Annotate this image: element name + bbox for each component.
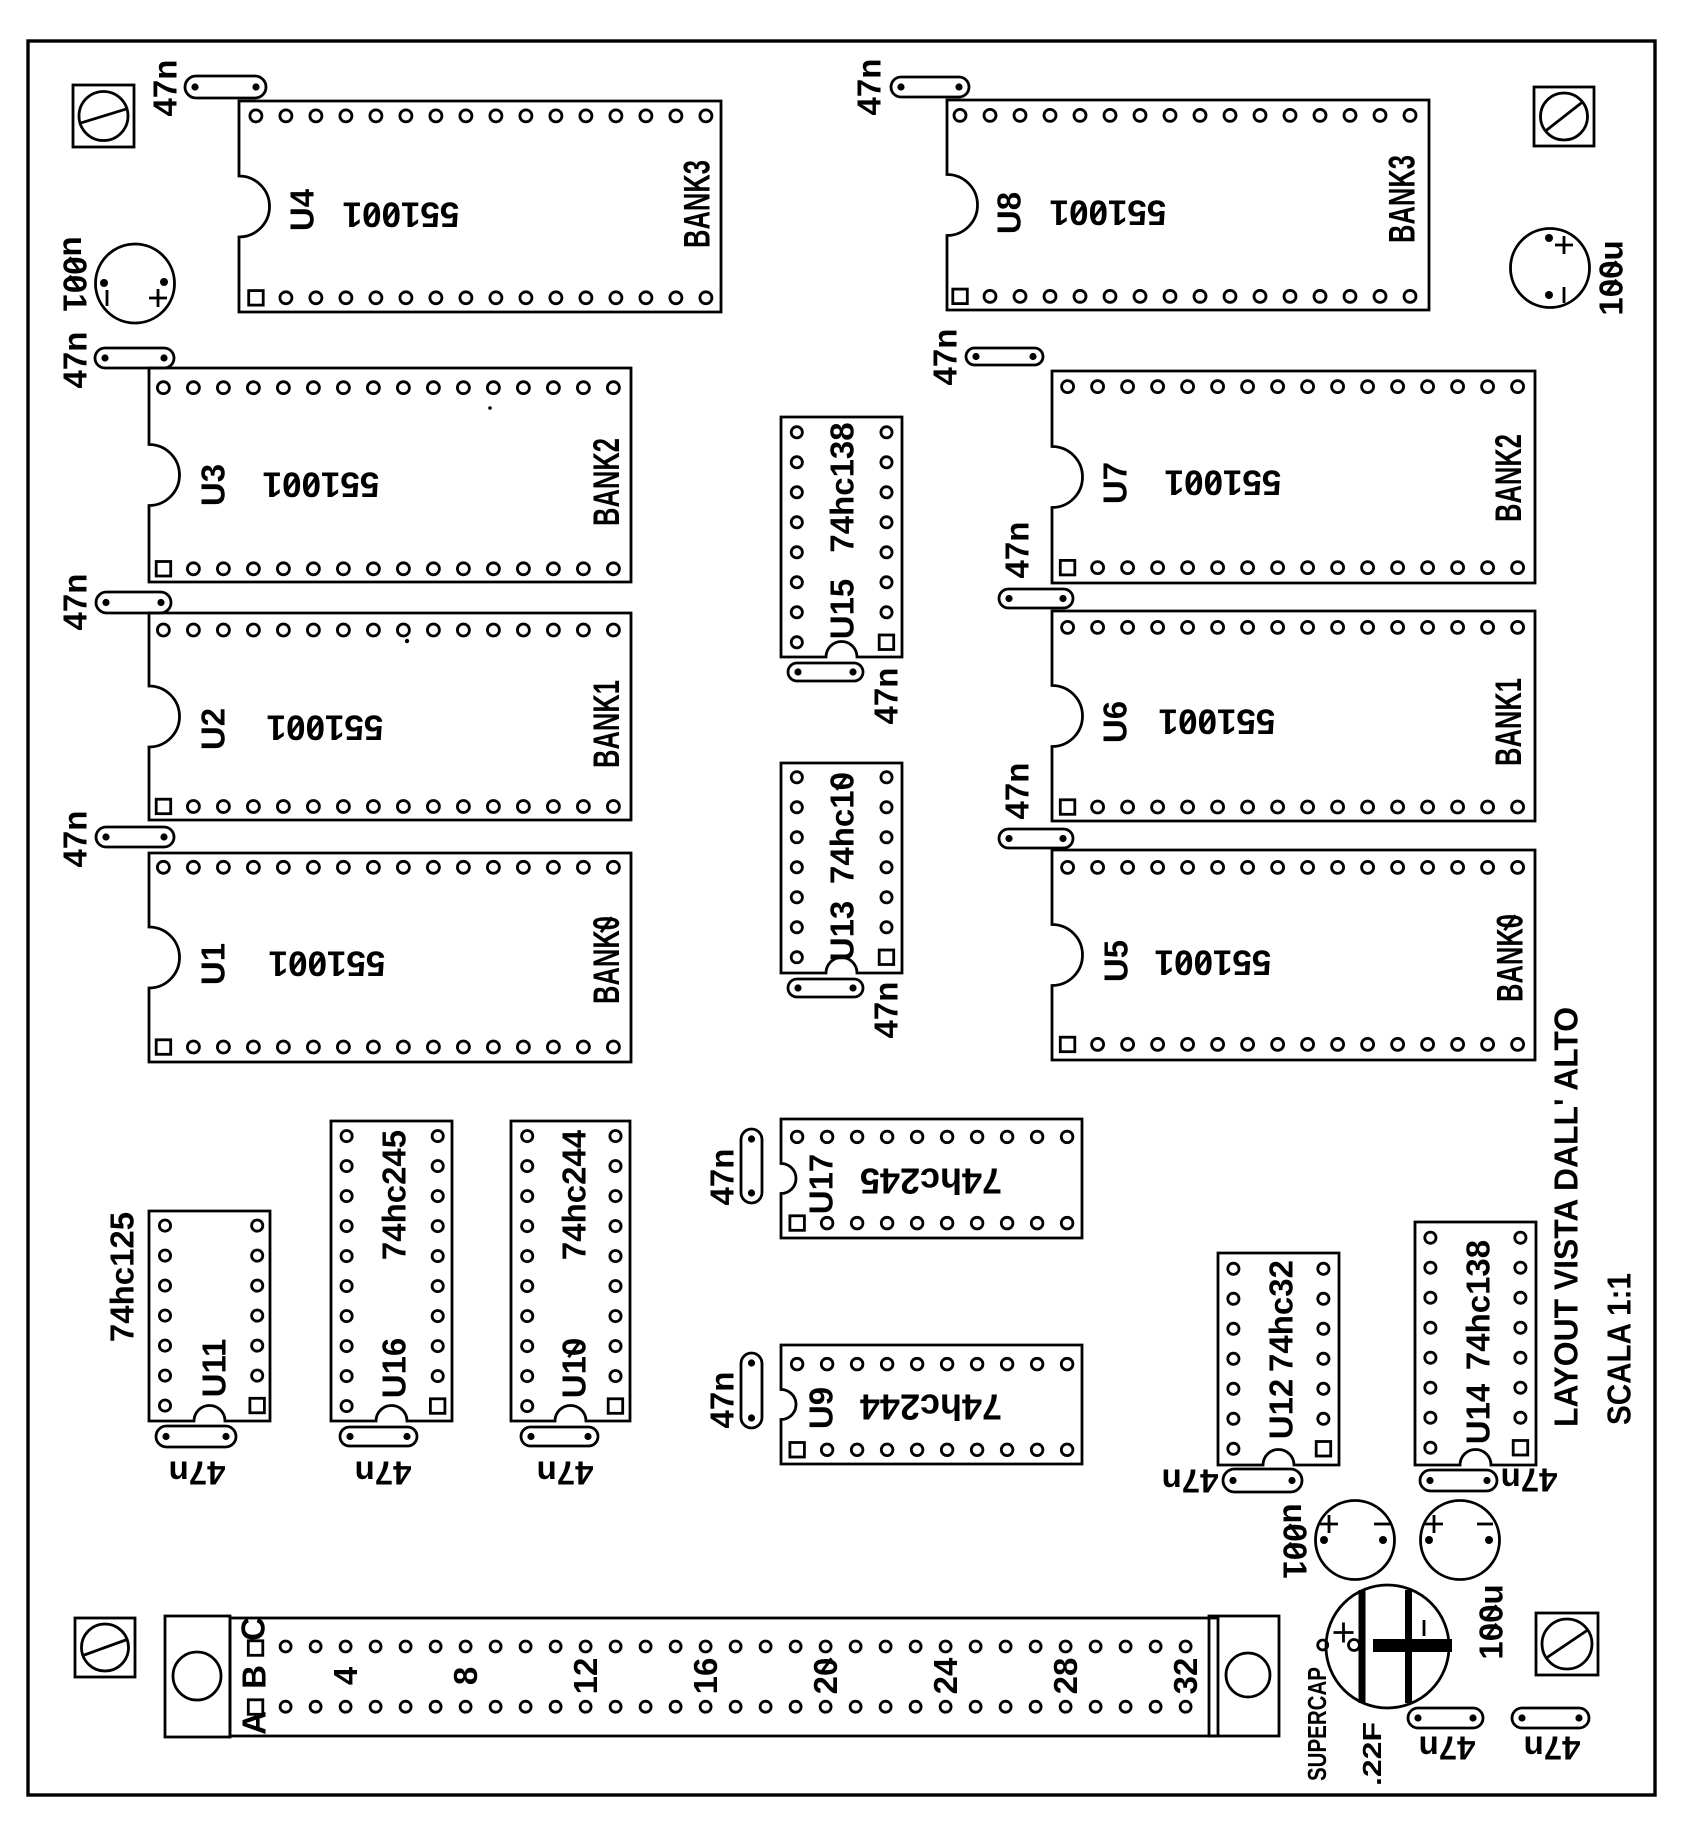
svg-text:551001: 551001 (1159, 702, 1276, 741)
svg-text:74hc245: 74hc245 (860, 1161, 1002, 1202)
svg-text:74hc125: 74hc125 (104, 1212, 141, 1342)
svg-text:47n: 47n (999, 522, 1036, 579)
svg-text:100u: 100u (1593, 240, 1630, 315)
svg-text:BANK1: BANK1 (586, 680, 627, 768)
svg-text:551001: 551001 (1155, 943, 1272, 982)
svg-text:U7: U7 (1097, 462, 1134, 504)
svg-text:8: 8 (447, 1667, 484, 1685)
svg-text:47n: 47n (537, 1455, 594, 1492)
svg-text:U10: U10 (556, 1338, 593, 1399)
svg-text:U14: U14 (1460, 1383, 1497, 1444)
svg-text:551001: 551001 (269, 944, 386, 983)
svg-text:47n: 47n (57, 811, 94, 868)
svg-text:SUPERCAP: SUPERCAP (1302, 1667, 1332, 1781)
svg-text:U13: U13 (824, 901, 861, 962)
svg-text:u001: u001 (1277, 1503, 1314, 1578)
svg-text:BANK2: BANK2 (586, 438, 627, 526)
svg-text:47n: 47n (57, 332, 94, 389)
svg-text:47n: 47n (999, 763, 1036, 820)
svg-text:47n: 47n (704, 1149, 741, 1206)
svg-text:551001: 551001 (1050, 193, 1167, 232)
svg-text:74hc138: 74hc138 (824, 422, 861, 552)
svg-text:U12: U12 (1263, 1379, 1300, 1440)
svg-text:U2: U2 (195, 708, 232, 750)
svg-text:47n: 47n (1501, 1462, 1558, 1499)
svg-text:BANK0: BANK0 (586, 916, 627, 1004)
svg-text:47n: 47n (1524, 1730, 1581, 1767)
svg-text:24: 24 (927, 1657, 964, 1694)
svg-text:U3: U3 (195, 464, 232, 506)
svg-text:U9: U9 (803, 1387, 840, 1429)
svg-text:47n: 47n (57, 574, 94, 631)
svg-text:74hc10: 74hc10 (824, 772, 861, 884)
svg-text:U1: U1 (195, 943, 232, 985)
svg-text:32: 32 (1167, 1658, 1204, 1695)
svg-text:47n: 47n (1162, 1463, 1219, 1500)
svg-text:12: 12 (567, 1658, 604, 1695)
svg-text:47n: 47n (927, 329, 964, 386)
svg-text:47n: 47n (147, 60, 184, 117)
svg-text:551001: 551001 (1165, 463, 1282, 502)
svg-text:74hc244: 74hc244 (556, 1129, 593, 1260)
svg-text:20: 20 (807, 1658, 844, 1695)
svg-text:B: B (236, 1665, 273, 1689)
svg-text:.22F: .22F (1357, 1722, 1387, 1786)
svg-text:551001: 551001 (267, 708, 384, 747)
svg-text:U4: U4 (284, 188, 321, 231)
svg-text:74hc138: 74hc138 (1460, 1240, 1497, 1370)
svg-text:47n: 47n (868, 982, 905, 1039)
svg-text:C: C (235, 1617, 272, 1641)
svg-text:47n: 47n (704, 1372, 741, 1429)
svg-text:BANK3: BANK3 (1382, 155, 1423, 243)
svg-text:551001: 551001 (263, 465, 380, 504)
svg-text:u001: u001 (57, 236, 94, 311)
svg-text:U11: U11 (196, 1339, 233, 1398)
svg-text:47n: 47n (868, 668, 905, 725)
svg-text:74hc32: 74hc32 (1263, 1260, 1300, 1372)
svg-text:100u: 100u (1473, 1584, 1510, 1659)
svg-text:A: A (236, 1711, 273, 1735)
svg-text:U6: U6 (1097, 701, 1134, 743)
svg-text:47n: 47n (1419, 1730, 1476, 1767)
svg-text:47n: 47n (355, 1455, 412, 1492)
svg-text:28: 28 (1047, 1658, 1084, 1695)
svg-text:U8: U8 (991, 192, 1028, 234)
svg-text:BANK1: BANK1 (1488, 678, 1529, 766)
svg-text:BANK2: BANK2 (1488, 434, 1529, 522)
svg-text:BANK3: BANK3 (677, 160, 718, 248)
svg-text:551001: 551001 (343, 195, 460, 234)
svg-text:U17: U17 (803, 1154, 840, 1215)
svg-text:BANK0: BANK0 (1490, 914, 1531, 1002)
svg-text:74hc244: 74hc244 (860, 1387, 1002, 1428)
svg-text:U16: U16 (376, 1338, 413, 1399)
svg-text:LAYOUT VISTA DALL' ALTO: LAYOUT VISTA DALL' ALTO (1548, 1007, 1585, 1427)
svg-text:74hc245: 74hc245 (376, 1130, 413, 1260)
svg-text:U5: U5 (1098, 940, 1135, 982)
svg-text:16: 16 (687, 1658, 724, 1695)
svg-text:U15: U15 (824, 579, 861, 640)
svg-text:SCALA 1:1: SCALA 1:1 (1601, 1273, 1638, 1425)
svg-text:47n: 47n (169, 1455, 226, 1492)
svg-text:47n: 47n (851, 59, 888, 116)
svg-text:4: 4 (327, 1666, 364, 1685)
